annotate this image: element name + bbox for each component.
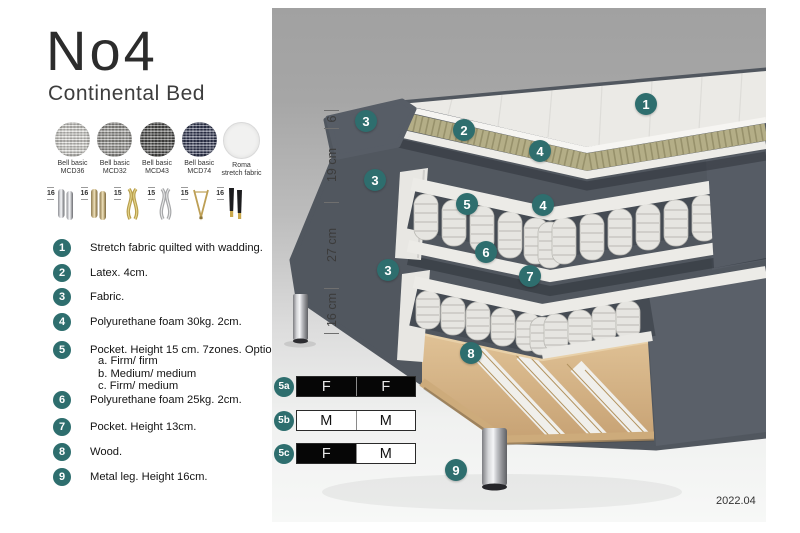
- dimension-mattress: 19 cm: [325, 142, 339, 188]
- fabric-swatch-image: [97, 122, 132, 157]
- twisted-gold-leg-icon: [123, 186, 143, 222]
- swatch-code: MCD32: [103, 168, 127, 175]
- swatch-name: Bell basic: [142, 160, 172, 167]
- leg-option-chrome: 16: [47, 186, 76, 224]
- leg-height: 15: [147, 190, 155, 197]
- firmness-row-5c: 5c F M: [274, 443, 416, 464]
- bed-badge-3b: 3: [364, 169, 386, 191]
- bed-badge-2: 2: [453, 119, 475, 141]
- spec-item-9: 9 Metal leg. Height 16cm.: [53, 468, 208, 486]
- leg-height: 16: [216, 190, 224, 197]
- swatch-code: MCD43: [145, 168, 169, 175]
- fabric-swatch-image: [140, 122, 175, 157]
- bed-badge-7: 7: [519, 265, 541, 287]
- spec-number-badge: 7: [53, 418, 71, 436]
- firmness-cell: M: [297, 411, 356, 430]
- firmness-badge: 5a: [274, 377, 294, 397]
- firmness-badge: 5c: [274, 444, 294, 464]
- page: { "title": "No4", "subtitle": "Continent…: [0, 0, 800, 533]
- bed-badge-9: 9: [445, 459, 467, 481]
- spec-number-badge: 1: [53, 239, 71, 257]
- option-b: b. Medium/ medium: [98, 368, 196, 381]
- product-subtitle: Continental Bed: [48, 82, 205, 106]
- fabric-swatch-roma: Romastretch fabric: [221, 122, 262, 178]
- fabric-swatch-image: [223, 122, 260, 159]
- bed-diagram-panel: 6 19 cm 27 cm 16 cm 1 2 3 3 3 4 4 5 6 7 …: [272, 8, 766, 522]
- black-gold-legs-icon: [225, 186, 247, 224]
- spec-item-8: 8 Wood.: [53, 443, 122, 461]
- leg-option-hairpin: 15: [181, 186, 212, 224]
- fabric-swatches: Bell basicMCD36 Bell basicMCD32 Bell bas…: [52, 122, 262, 178]
- spec-text: Stretch fabric quilted with wadding.: [90, 239, 263, 257]
- chrome-cylinder-legs-icon: [56, 186, 76, 222]
- firmness-cell: F: [356, 377, 416, 396]
- spec-number-badge: 9: [53, 468, 71, 486]
- leg-option-black-gold: 16: [216, 186, 247, 224]
- spec-text: Metal leg. Height 16cm.: [90, 468, 208, 486]
- spec-number-badge: 4: [53, 313, 71, 331]
- brass-cylinder-legs-icon: [89, 186, 109, 222]
- leg-height: 15: [181, 190, 189, 197]
- product-title: No4: [46, 18, 158, 83]
- fabric-swatch-mcd74: Bell basicMCD74: [179, 122, 220, 178]
- spec-number-badge: 5: [53, 341, 71, 359]
- fabric-swatch-image: [55, 122, 90, 157]
- spec-text: Polyurethane foam 30kg. 2cm.: [90, 313, 242, 331]
- spec-number-badge: 8: [53, 443, 71, 461]
- spec-text: Wood.: [90, 443, 122, 461]
- dimension-leg: 16 cm: [325, 287, 339, 333]
- leg-height: 16: [47, 190, 55, 197]
- bed-badge-8: 8: [460, 342, 482, 364]
- bed-badge-4b: 4: [532, 194, 554, 216]
- bed-badge-3c: 3: [377, 259, 399, 281]
- leg-height: 16: [80, 190, 88, 197]
- spec-text: Latex. 4cm.: [90, 264, 148, 282]
- bed-badge-4a: 4: [529, 140, 551, 162]
- swatch-name: Bell basic: [58, 160, 88, 167]
- bed-badge-1: 1: [635, 93, 657, 115]
- swatch-code: MCD74: [187, 168, 211, 175]
- twisted-silver-leg-icon: [156, 186, 176, 222]
- ruler-tick: [324, 202, 339, 203]
- leg-option-twisted-gold: 15: [114, 186, 143, 224]
- firmness-cell: F: [297, 377, 356, 396]
- spec-item-6: 6 Polyurethane foam 25kg. 2cm.: [53, 391, 242, 409]
- swatch-name: Bell basic: [184, 160, 214, 167]
- version-label: 2022.04: [716, 495, 756, 507]
- firmness-badge: 5b: [274, 411, 294, 431]
- spec-item-3: 3 Fabric.: [53, 288, 124, 306]
- firmness-row-5a: 5a F F: [274, 376, 416, 397]
- spec-text: Pocket. Height 13cm.: [90, 418, 196, 436]
- spec-text: Polyurethane foam 25kg. 2cm.: [90, 391, 242, 409]
- fabric-swatch-mcd32: Bell basicMCD32: [94, 122, 135, 178]
- leg-height: 15: [114, 190, 122, 197]
- dimension-base: 27 cm: [325, 222, 339, 268]
- ruler-tick: [324, 333, 339, 334]
- spec-text: Fabric.: [90, 288, 124, 306]
- spec-number-badge: 6: [53, 391, 71, 409]
- dimension-topper: 6: [325, 96, 339, 142]
- bed-badge-6: 6: [475, 241, 497, 263]
- swatch-name: Roma: [232, 162, 251, 169]
- firmness-row-5b: 5b M M: [274, 410, 416, 431]
- swatch-code: stretch fabric: [221, 170, 261, 177]
- leg-option-brass: 16: [80, 186, 109, 224]
- bed-badge-3a: 3: [355, 110, 377, 132]
- leg-option-twisted-silver: 15: [147, 186, 176, 224]
- firmness-cell: M: [356, 411, 416, 430]
- fabric-swatch-mcd36: Bell basicMCD36: [52, 122, 93, 178]
- spec-number-badge: 2: [53, 264, 71, 282]
- spec-item-1: 1 Stretch fabric quilted with wadding.: [53, 239, 263, 257]
- leg-options: 16 16 15 15 15: [47, 186, 247, 224]
- fabric-swatch-mcd43: Bell basicMCD43: [137, 122, 178, 178]
- spec-item-4: 4 Polyurethane foam 30kg. 2cm.: [53, 313, 242, 331]
- bed-badge-5: 5: [456, 193, 478, 215]
- spec-number-badge: 3: [53, 288, 71, 306]
- option-a: a. Firm/ firm: [98, 355, 196, 368]
- spec-item-2: 2 Latex. 4cm.: [53, 264, 148, 282]
- firmness-cell: F: [297, 444, 356, 463]
- spec-item-7: 7 Pocket. Height 13cm.: [53, 418, 196, 436]
- swatch-name: Bell basic: [100, 160, 130, 167]
- fabric-swatch-image: [182, 122, 217, 157]
- swatch-code: MCD36: [61, 168, 85, 175]
- hairpin-leg-icon: [190, 186, 212, 222]
- firmness-cell: M: [356, 444, 416, 463]
- spec-item-5-options: a. Firm/ firm b. Medium/ medium c. Firm/…: [98, 355, 196, 393]
